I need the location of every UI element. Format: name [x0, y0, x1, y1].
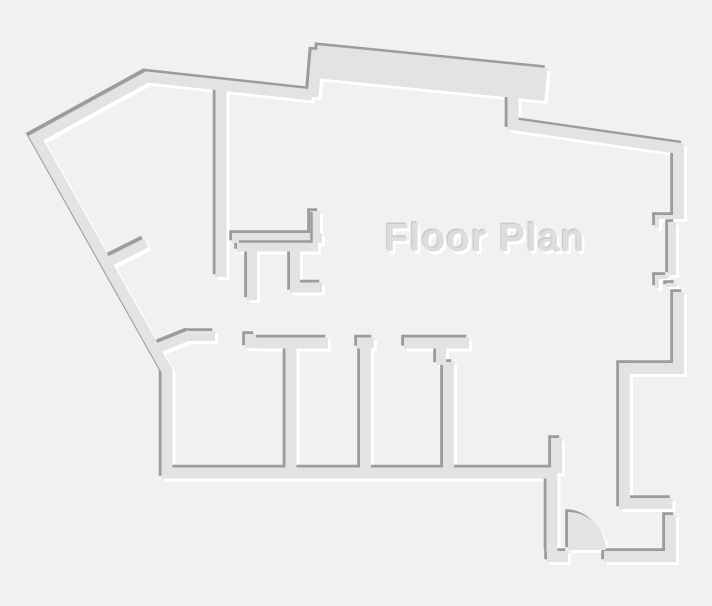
balcony-slab: [316, 62, 546, 85]
floor-plan-title: Floor Plan: [385, 217, 586, 260]
floor-plan-drawing: Floor PlanFloor PlanFloor Plan: [0, 0, 712, 606]
floor-plan-canvas: Floor PlanFloor PlanFloor Plan: [0, 0, 712, 606]
